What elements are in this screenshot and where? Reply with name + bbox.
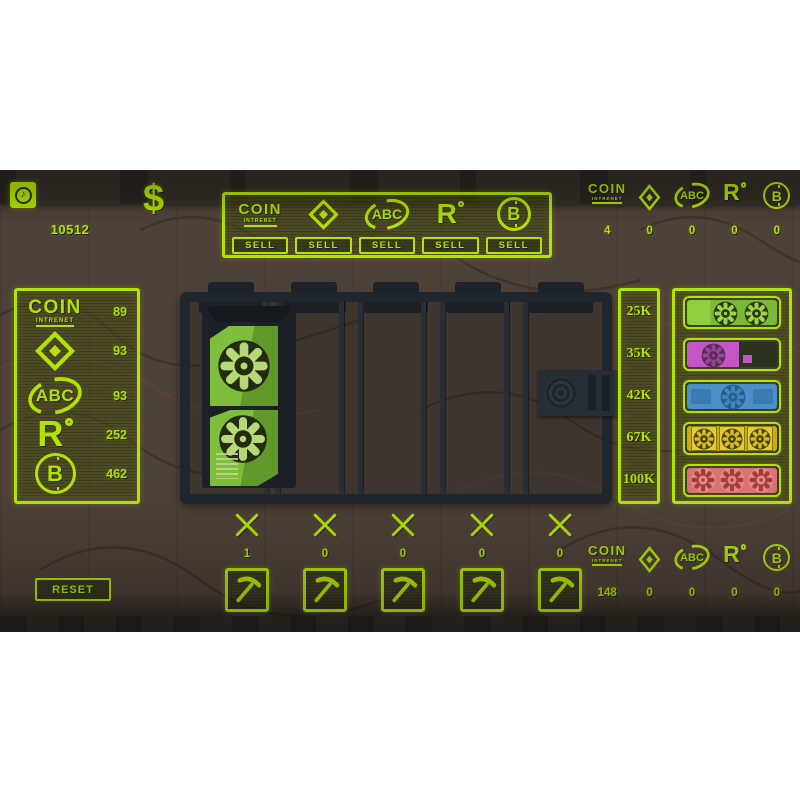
bitcoin-coin-icon: B (497, 197, 531, 231)
r-coin-icon: R (723, 182, 746, 204)
rig-slot-5[interactable] (528, 302, 602, 494)
gpu-heatsink (691, 389, 711, 404)
rig-slot-3[interactable] (363, 302, 436, 494)
wallet-bottom: COIN INTRENET 148 0 AB (586, 544, 798, 599)
r-label: R (437, 201, 457, 228)
gpu-body (687, 426, 777, 451)
wallet-top-abc: ABC 0 (671, 182, 713, 237)
mined-row-r: R 252 (17, 417, 137, 451)
wallet-bottom-r-value: 0 (731, 587, 737, 599)
wallet-bottom-diamond-value: 0 (646, 587, 652, 599)
bitcoin-coin-icon: B (763, 182, 790, 209)
bitcoin-label: B (772, 550, 782, 566)
abc-coin-icon: ABC (363, 198, 411, 231)
pickaxe-icon (544, 574, 576, 606)
coin-icon-box: COIN INTRENET (588, 182, 627, 218)
music-note-icon: ♪ (21, 190, 26, 200)
r-icon-box: R (437, 196, 465, 232)
gpu-chip (743, 355, 752, 363)
gpu-body (687, 300, 777, 325)
slot-1-count: 1 (244, 548, 250, 560)
wallet-top-abc-value: 0 (689, 225, 695, 237)
abc-orbit-ring (363, 198, 411, 231)
coin-label: COIN (588, 544, 627, 557)
mine-button-slot-1[interactable] (225, 568, 269, 612)
mined-row-bitcoin: B 462 (17, 453, 137, 494)
coin-label: COIN (238, 202, 282, 217)
slot-2-counter: 0 (293, 510, 357, 560)
wallet-bottom-coin: COIN INTRENET 148 (586, 544, 628, 599)
r-coin-icon: R (723, 544, 746, 566)
coin-icon-box: COIN INTRENET (588, 544, 627, 580)
gpu-body (687, 342, 777, 367)
diamond-coin-icon (637, 544, 662, 575)
pickaxe-icon (309, 574, 341, 606)
coin-intrenet-logo: COIN INTRENET (588, 182, 627, 204)
mine-button-slot-5[interactable] (538, 568, 582, 612)
rack-top-tab (538, 282, 584, 294)
rack-top-tab (291, 282, 337, 294)
price-label-42k: 42K (627, 388, 652, 404)
r-label: R (723, 182, 740, 204)
rig-slot-4[interactable] (445, 302, 519, 494)
gpu-fan-icon (693, 428, 715, 450)
wallet-top-bitcoin-value: 0 (774, 225, 780, 237)
mined-row-abc: ABC 93 (17, 376, 137, 416)
gpu-fan-icon (720, 384, 746, 409)
slot-1-counter: 1 (215, 510, 279, 560)
wallet-top-r: R 0 (713, 182, 755, 237)
mined-row-coin: COIN INTRENET 89 (17, 298, 137, 327)
abc-orbit-ring (26, 376, 84, 416)
wallet-top-coin: COIN INTRENET 4 (586, 182, 628, 237)
r-label: R (723, 544, 740, 566)
multiplier-x-icon (310, 510, 340, 540)
shop-gpu-red-triple-fan[interactable] (683, 464, 781, 497)
sell-column-r: R SELL (422, 196, 478, 254)
degree-mark (458, 201, 464, 207)
price-label-100k: 100K (623, 472, 655, 488)
sell-coin-button[interactable]: SELL (232, 237, 288, 254)
diamond-coin-icon (306, 197, 341, 232)
slot-3-counter: 0 (371, 510, 435, 560)
gpu-fan-icon (713, 301, 738, 325)
coin-intrenet-icon-box: COIN INTRENET (238, 196, 282, 232)
gpu-fan-module (747, 426, 773, 451)
rack-top-tab (208, 282, 254, 294)
gpu-fan-module (748, 468, 774, 493)
mine-button-slot-4[interactable] (460, 568, 504, 612)
gpu-body (687, 468, 777, 493)
degree-mark (65, 418, 73, 426)
sell-column-abc: ABC SELL (359, 196, 415, 254)
sell-column-diamond: SELL (295, 196, 351, 254)
r-icon-box: R (723, 182, 746, 218)
gpu-fan-icon (748, 468, 774, 493)
music-toggle-button[interactable]: ♪ (10, 182, 36, 208)
mine-button-slot-2[interactable] (303, 568, 347, 612)
mined-abc-value: 93 (93, 389, 137, 403)
r-coin-icon: R (37, 417, 72, 451)
r-label: R (37, 417, 63, 451)
gpu-fan-icon (701, 343, 726, 367)
abc-icon-box: ABC (17, 376, 93, 416)
sell-column-coin: COIN INTRENET SELL (232, 196, 288, 254)
bitcoin-icon-box: B (497, 196, 531, 232)
wallet-top: COIN INTRENET 4 0 ABC (586, 182, 798, 237)
gpu-fan-module (719, 426, 745, 451)
gpu-body (687, 384, 777, 409)
wallet-bottom-diamond: 0 (628, 544, 670, 599)
gpu-fan-icon (690, 468, 716, 493)
degree-mark (741, 182, 746, 187)
diamond-icon-box (637, 182, 662, 218)
slot-3-count: 0 (400, 548, 406, 560)
wallet-top-bitcoin: B 0 (756, 182, 798, 237)
multiplier-x-icon (388, 510, 418, 540)
wallet-top-diamond-value: 0 (646, 225, 652, 237)
gpu-fan-icon (719, 468, 745, 493)
r-coin-icon: R (437, 201, 465, 228)
abc-icon-box: ABC (673, 182, 711, 218)
abc-icon-box: ABC (363, 196, 411, 232)
abc-coin-icon: ABC (26, 376, 84, 416)
wallet-bottom-r: R 0 (713, 544, 755, 599)
diamond-coin-icon (32, 328, 78, 374)
coin-icon-box: COIN INTRENET (17, 298, 93, 327)
slot-4-counter: 0 (450, 510, 514, 560)
mining-rack (180, 292, 612, 504)
abc-coin-icon: ABC (673, 544, 711, 571)
pickaxe-icon (231, 574, 263, 606)
reset-button[interactable]: RESET (35, 578, 111, 601)
gpu-heatsink (753, 389, 773, 404)
mined-r-value: 252 (93, 428, 137, 442)
diamond-icon-box (306, 196, 341, 232)
mined-row-diamond: 93 (17, 328, 137, 374)
music-icon-ring: ♪ (15, 187, 32, 204)
rack-top-tab (455, 282, 501, 294)
psu-slot (602, 375, 610, 411)
bitcoin-icon-box: B (763, 544, 790, 580)
shop-gpu-yellow-triple-fan[interactable] (683, 422, 781, 455)
sell-diamond-button[interactable]: SELL (295, 237, 351, 254)
bitcoin-coin-icon: B (763, 544, 790, 571)
abc-orbit-ring (673, 544, 711, 571)
dollar-symbol: $ (143, 178, 164, 221)
r-icon-box: R (17, 417, 93, 451)
gpu-fan-module (691, 426, 717, 451)
price-label-25k: 25K (627, 304, 652, 320)
mined-coin-value: 89 (93, 305, 137, 319)
coin-label: COIN (28, 298, 82, 317)
coin-intrenet-logo: COIN INTRENET (588, 544, 627, 566)
mine-button-slot-3[interactable] (381, 568, 425, 612)
slot-5-counter: 0 (528, 510, 592, 560)
shop-gpu-green-dual-fan[interactable] (683, 296, 781, 329)
pickaxe-icon (387, 574, 419, 606)
pickaxe-icon (466, 574, 498, 606)
wallet-bottom-abc-value: 0 (689, 587, 695, 599)
bitcoin-icon-box: B (17, 453, 93, 494)
price-label-67k: 67K (627, 430, 652, 446)
diamond-coin-icon (637, 182, 662, 213)
gpu-shop-panel (672, 288, 792, 504)
r-icon-box: R (723, 544, 746, 580)
game-viewport: ♪ $ 10512 COIN INTRENET SELL SELL (0, 170, 800, 632)
bitcoin-label: B (507, 204, 520, 225)
wallet-bottom-abc: ABC 0 (671, 544, 713, 599)
wallet-top-diamond: 0 (628, 182, 670, 237)
coin-intrenet-logo: COIN INTRENET (238, 202, 282, 227)
abc-orbit-ring (673, 182, 711, 209)
degree-mark (741, 544, 746, 549)
price-label-35k: 35K (627, 346, 652, 362)
coin-sublabel: INTRENET (36, 318, 74, 327)
shop-gpu-magenta-single-fan[interactable] (683, 338, 781, 371)
sell-r-button[interactable]: SELL (422, 237, 478, 254)
abc-icon-box: ABC (673, 544, 711, 580)
sell-abc-button[interactable]: SELL (359, 237, 415, 254)
diamond-icon-box (17, 328, 93, 374)
bitcoin-icon-box: B (763, 182, 790, 218)
shop-gpu-blue-single-fan[interactable] (683, 380, 781, 413)
bitcoin-label: B (772, 188, 782, 204)
wallet-bottom-coin-value: 148 (598, 587, 617, 599)
rig-slot-2[interactable] (280, 302, 354, 494)
coin-label: COIN (588, 182, 627, 195)
slot-2-count: 0 (322, 548, 328, 560)
gpu-fan-icon (721, 428, 743, 450)
bitcoin-label: B (47, 461, 63, 487)
gpu-fan-module (719, 468, 745, 493)
mined-diamond-value: 93 (93, 344, 137, 358)
sell-panel: COIN INTRENET SELL SELL (222, 192, 552, 258)
gpu-fan-icon (749, 428, 771, 450)
wallet-bottom-bitcoin: B 0 (756, 544, 798, 599)
gpu-fan-icon (744, 301, 769, 325)
slot-4-count: 0 (479, 548, 485, 560)
multiplier-x-icon (232, 510, 262, 540)
coin-sublabel: INTRENET (592, 196, 623, 204)
diamond-icon-box (637, 544, 662, 580)
coin-intrenet-logo: COIN INTRENET (28, 298, 82, 327)
abc-coin-icon: ABC (673, 182, 711, 209)
mined-coins-panel: COIN INTRENET 89 93 AB (14, 288, 140, 504)
coin-sublabel: INTRENET (592, 558, 623, 566)
multiplier-x-icon (467, 510, 497, 540)
wallet-bottom-bitcoin-value: 0 (774, 587, 780, 599)
multiplier-x-icon (545, 510, 575, 540)
sell-bitcoin-button[interactable]: SELL (486, 237, 542, 254)
gpu-fan-module (690, 468, 716, 493)
rack-top-tab (373, 282, 419, 294)
screenshot-canvas: ♪ $ 10512 COIN INTRENET SELL SELL (0, 0, 800, 800)
gpu-price-panel: 25K 35K 42K 67K 100K (618, 288, 660, 504)
rig-slot-1[interactable] (190, 302, 270, 494)
bitcoin-coin-icon: B (35, 453, 76, 494)
mined-bitcoin-value: 462 (93, 467, 137, 481)
slot-5-count: 0 (557, 548, 563, 560)
money-amount: 10512 (30, 222, 110, 237)
wallet-top-r-value: 0 (731, 225, 737, 237)
sell-column-bitcoin: B SELL (486, 196, 542, 254)
wallet-top-coin-value: 4 (604, 225, 610, 237)
coin-sublabel: INTRENET (244, 218, 277, 227)
